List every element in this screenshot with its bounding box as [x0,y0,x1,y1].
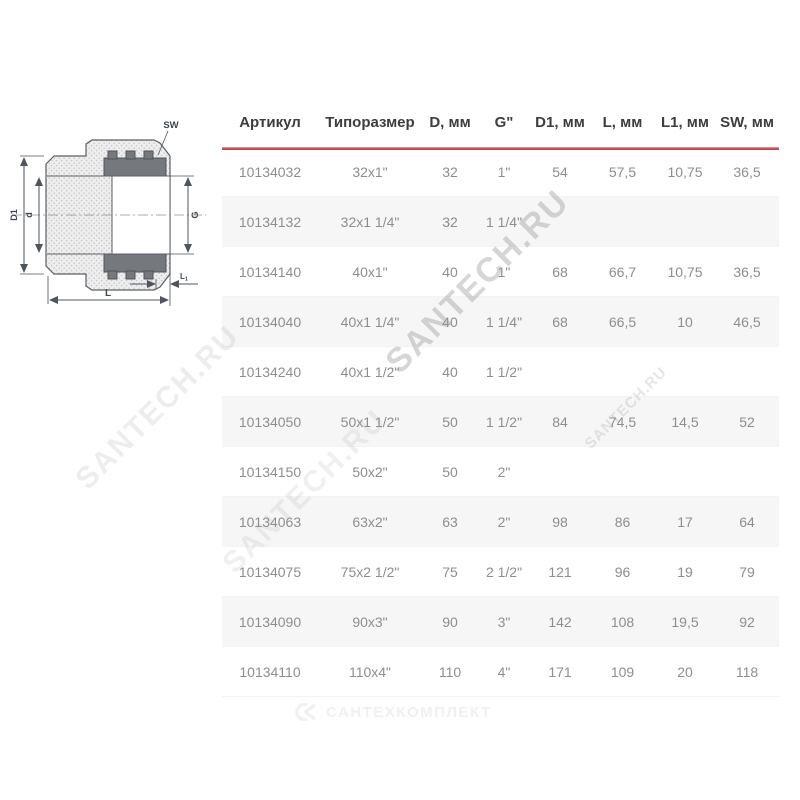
table-cell: 10134240 [222,347,318,397]
table-cell [715,197,779,247]
table-cell: 4" [478,647,530,697]
table-cell: 10134063 [222,497,318,547]
table-cell: 10134050 [222,397,318,447]
table-cell: 10 [655,297,715,347]
table-cell: 63x2" [318,497,422,547]
table-cell: 10134075 [222,547,318,597]
table-cell: 64 [715,497,779,547]
table-cell: 90 [422,597,478,647]
column-header: Типоразмер [318,98,422,147]
table-cell: 40 [422,347,478,397]
ck-monogram-icon [294,703,318,721]
table-cell: 63 [422,497,478,547]
table-cell: 74,5 [590,397,655,447]
table-cell: 32x1 1/4" [318,197,422,247]
footer-logo: САНТЕХКОМПЛЕКТ [294,700,492,724]
table-row: 1013414040x1"401"6866,710,7536,5 [222,247,779,297]
column-header: Артикул [222,98,318,147]
table-cell: 1 1/2" [478,397,530,447]
table-cell: 40 [422,297,478,347]
table-cell: 54 [530,147,590,197]
fitting-technical-drawing: D1 d G SW L1 L [8,112,213,312]
dim-label-d: d [24,212,34,218]
table-cell: 98 [530,497,590,547]
column-header: D1, мм [530,98,590,147]
table-cell [655,447,715,497]
dim-label-l: L [105,288,111,299]
table-cell: 50 [422,447,478,497]
table-cell: 50x1 1/2" [318,397,422,447]
table-cell: 10,75 [655,247,715,297]
table-cell: 86 [590,497,655,547]
table-cell: 109 [590,647,655,697]
table-cell: 84 [530,397,590,447]
table-cell: 92 [715,597,779,647]
spec-table: АртикулТипоразмерD, ммG"D1, ммL, ммL1, м… [222,98,779,697]
table-cell [715,447,779,497]
table-cell: 96 [590,547,655,597]
table-cell: 66,7 [590,247,655,297]
table-cell: 10134132 [222,197,318,247]
table-cell: 36,5 [715,247,779,297]
table-row: 10134110110x4"1104"17110920118 [222,647,779,697]
table-cell: 171 [530,647,590,697]
table-cell: 10134150 [222,447,318,497]
table-cell: 40x1 1/4" [318,297,422,347]
table-cell [715,347,779,397]
table-cell [655,347,715,397]
column-header: D, мм [422,98,478,147]
dim-label-d1: D1 [9,209,19,221]
table-cell: 14,5 [655,397,715,447]
table-cell: 108 [590,597,655,647]
table-cell: 10134090 [222,597,318,647]
watermark-santech-ru: SANTECH.RU [69,319,246,496]
table-row: 1013413232x1 1/4"321 1/4" [222,197,779,247]
table-cell: 19 [655,547,715,597]
table-cell: 17 [655,497,715,547]
table-cell: 2 1/2" [478,547,530,597]
table-cell: 36,5 [715,147,779,197]
column-header: L, мм [590,98,655,147]
table-cell: 110x4" [318,647,422,697]
table-row: 1013415050x2"502" [222,447,779,497]
table-cell: 142 [530,597,590,647]
table-row: 1013403232x1"321"5457,510,7536,5 [222,147,779,197]
table-cell: 19,5 [655,597,715,647]
table-cell: 3" [478,597,530,647]
table-cell: 75x2 1/2" [318,547,422,597]
table-row: 1013404040x1 1/4"401 1/4"6866,51046,5 [222,297,779,347]
header-row: АртикулТипоразмерD, ммG"D1, ммL, ммL1, м… [222,98,779,147]
table-cell [590,197,655,247]
table-row: 1013405050x1 1/2"501 1/2"8474,514,552 [222,397,779,447]
table-cell [530,347,590,397]
table-cell: 52 [715,397,779,447]
table-cell: 40 [422,247,478,297]
column-header: SW, мм [715,98,779,147]
table-row: 1013407575x2 1/2"752 1/2"121961979 [222,547,779,597]
table-cell: 1 1/4" [478,197,530,247]
table-cell: 46,5 [715,297,779,347]
table-row: 1013424040x1 1/2"401 1/2" [222,347,779,397]
dim-label-g: G [190,211,200,218]
column-header: G" [478,98,530,147]
table-cell: 68 [530,297,590,347]
table-cell: 90x3" [318,597,422,647]
table-cell [655,197,715,247]
table-cell: 66,5 [590,297,655,347]
spec-table-header: АртикулТипоразмерD, ммG"D1, ммL, ммL1, м… [222,98,779,147]
table-cell: 32 [422,197,478,247]
table-cell: 110 [422,647,478,697]
table-cell: 1 1/4" [478,297,530,347]
table-cell: 68 [530,247,590,297]
dim-label-l1: L1 [180,272,188,283]
table-cell: 10134110 [222,647,318,697]
table-cell: 10134040 [222,297,318,347]
spec-table-body: 1013403232x1"321"5457,510,7536,510134132… [222,147,779,697]
table-cell: 10134032 [222,147,318,197]
header-red-rule [222,147,779,150]
table-cell: 32x1" [318,147,422,197]
table-cell: 50 [422,397,478,447]
table-cell: 10,75 [655,147,715,197]
table-cell: 57,5 [590,147,655,197]
dim-label-sw: SW [163,120,178,131]
table-cell: 40x1" [318,247,422,297]
fitting-drawing-svg: D1 d G SW L1 L [8,112,213,312]
table-cell: 50x2" [318,447,422,497]
table-cell: 1" [478,147,530,197]
column-header: L1, мм [655,98,715,147]
table-cell: 1 1/2" [478,347,530,397]
table-cell: 118 [715,647,779,697]
table-cell: 40x1 1/2" [318,347,422,397]
table-cell [530,447,590,497]
table-cell: 2" [478,447,530,497]
table-cell [590,347,655,397]
table-cell: 2" [478,497,530,547]
footer-logo-text: САНТЕХКОМПЛЕКТ [326,704,492,721]
table-cell: 75 [422,547,478,597]
table-cell: 79 [715,547,779,597]
table-cell: 32 [422,147,478,197]
table-cell: 121 [530,547,590,597]
table-row: 1013406363x2"632"98861764 [222,497,779,547]
table-cell: 10134140 [222,247,318,297]
table-cell [590,447,655,497]
table-cell: 1" [478,247,530,297]
table-cell [530,197,590,247]
table-cell: 20 [655,647,715,697]
table-row: 1013409090x3"903"14210819,592 [222,597,779,647]
